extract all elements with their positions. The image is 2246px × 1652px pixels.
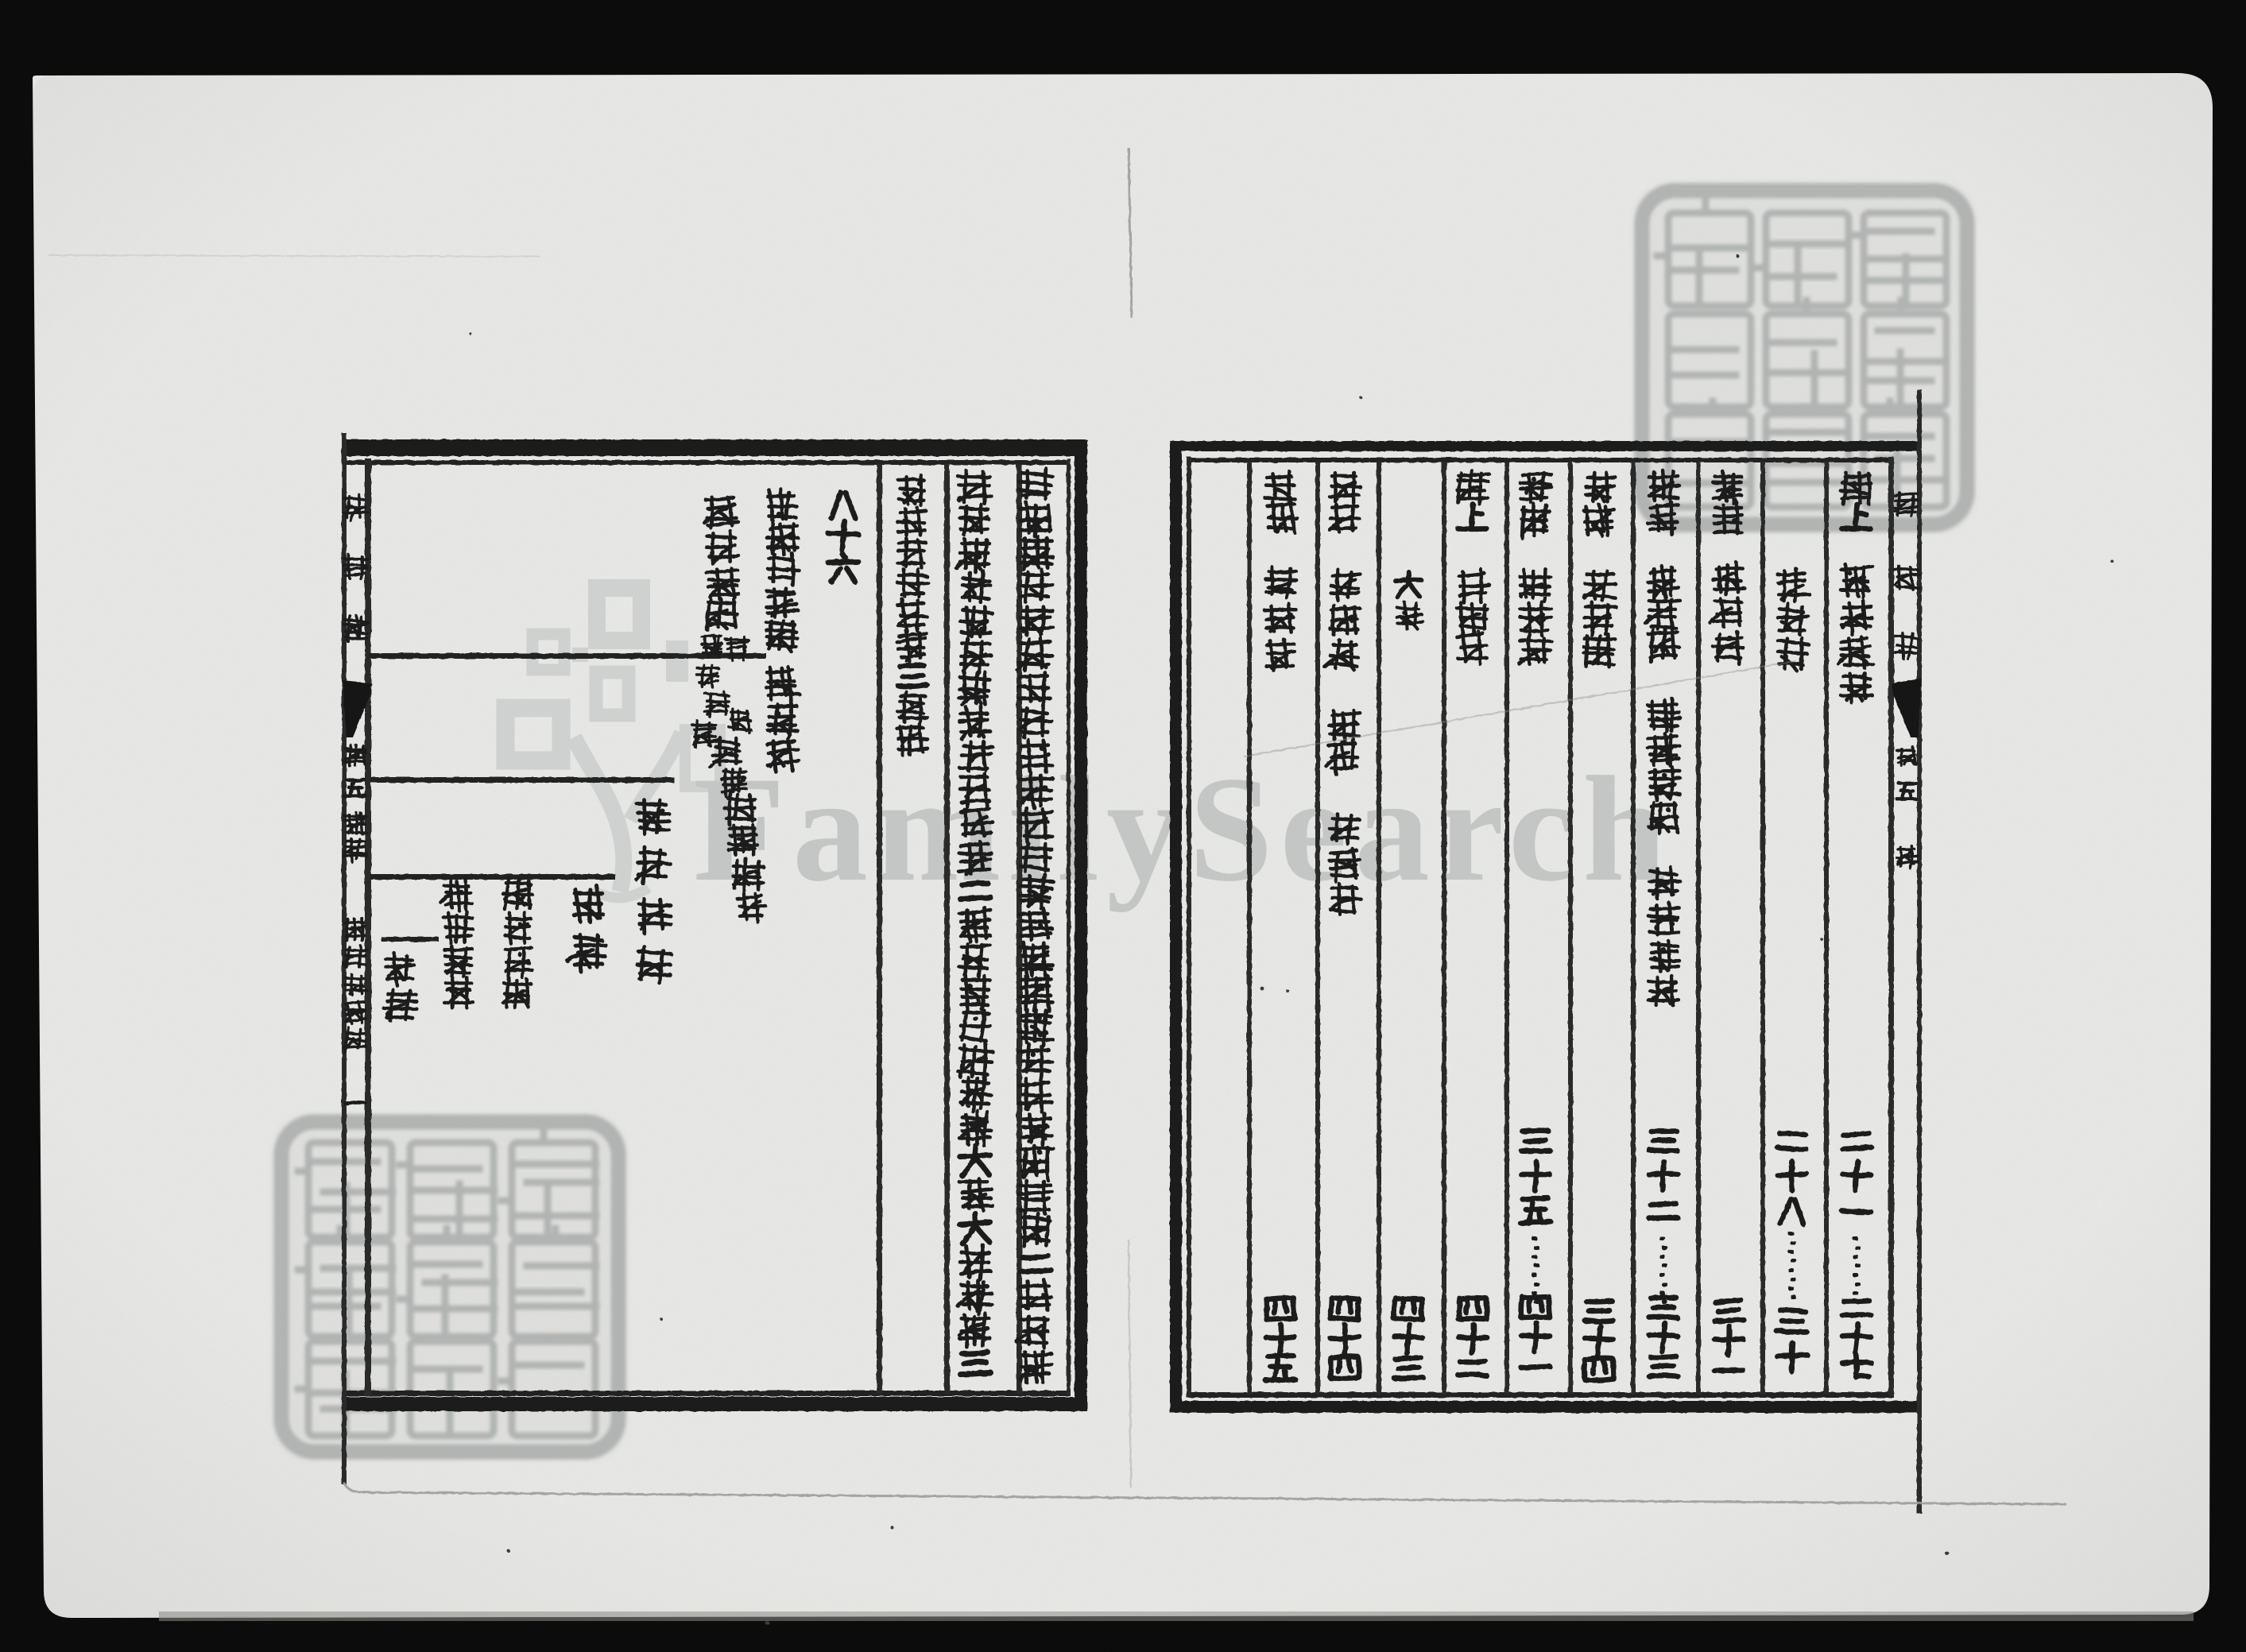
svg-text:FamilySearch: FamilySearch [693,746,1674,913]
